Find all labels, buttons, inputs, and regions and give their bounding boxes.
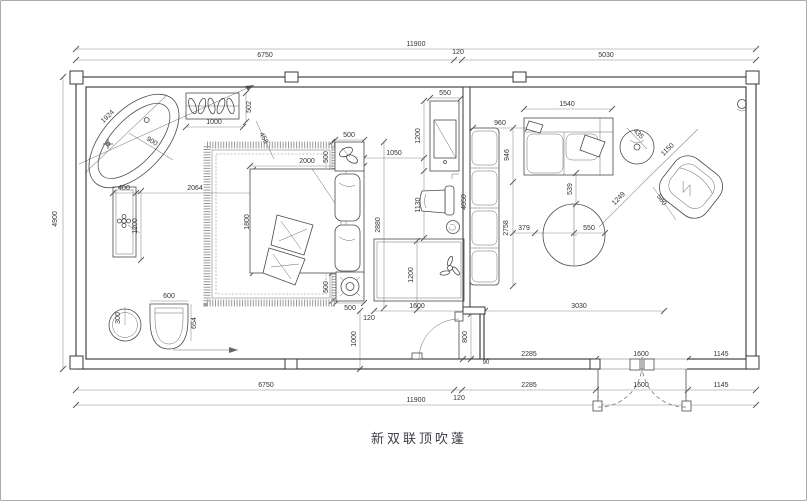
dim-label: 500 [344,305,356,312]
dim-label: 1600 [633,351,649,358]
dim-label: 1145 [713,382,728,389]
column-marker [285,72,298,82]
dim-label: 1000 [206,119,222,126]
dim-label: 1150 [660,142,676,158]
dim-label: 2285 [521,382,537,389]
dim-label: 539 [567,183,574,195]
sofa-pillow [526,121,543,133]
column-marker [590,359,600,369]
dim-label: 500 [323,281,330,293]
door-swing-arc [419,319,459,359]
dim-label: 3030 [571,303,587,310]
floor-plan-svg: 11900 6750 120 5030 4900 2285 1600 1145 … [1,1,807,501]
dim-label: 1130 [415,197,422,212]
dim-label: 6750 [257,52,273,59]
dim-label: 11900 [407,41,426,48]
bath-seat [150,304,188,349]
bedroom-door [412,312,463,359]
pillow [335,174,360,221]
dim-label: 1200 [408,267,415,283]
dim-label: 4900 [52,211,59,227]
desk-chair [420,186,454,215]
dim-label: 550 [583,225,595,232]
dim-label: 1800 [244,214,251,230]
walls [70,71,759,371]
furniture [72,78,747,411]
flower-symbol [122,219,126,223]
dim-label: 1050 [386,150,402,157]
bed [250,169,364,285]
dim-label: 120 [452,49,464,56]
dim-label: 960 [494,120,506,127]
dim-label: 435 [632,127,645,140]
coffee-table [543,204,605,266]
dim-label: 946 [504,149,511,161]
dim-label: 120 [363,315,375,322]
dim-label: 120 [453,395,465,402]
dim-label: 2285 [521,351,537,358]
armchair [653,149,729,224]
dim-label: 90 [483,360,490,366]
dim-label: 1200 [415,128,422,144]
dim-label: 6750 [258,382,274,389]
dim-label: 654 [191,317,198,329]
column-marker [746,356,759,369]
stool [447,221,460,234]
floorplan-canvas: 11900 6750 120 5030 4900 2285 1600 1145 … [0,0,807,501]
tv-cabinet [430,101,459,179]
dim-label: 1000 [351,331,358,347]
dim-label: 1145 [713,351,728,358]
dim-label: 300 [115,312,122,324]
dim-label: 800 [462,331,469,343]
dim-label: 1600 [633,382,649,389]
column-marker [70,356,83,369]
dim-label: 2064 [187,185,203,192]
dim-label: 2880 [375,217,382,233]
dimension-lines [60,46,759,408]
dim-label: 4050 [461,194,468,210]
dim-label: 400 [118,185,130,192]
bathtub [72,78,195,204]
dim-label: 900 [145,136,159,148]
dim-label: 550 [439,90,451,97]
dim-label: 1200 [132,218,139,234]
grid-rug [374,239,464,301]
pillow [335,225,360,271]
nightstand-bottom [336,272,364,301]
dim-label: 600 [163,293,175,300]
l-sofa [470,128,499,285]
dimension-labels: 11900 6750 120 5030 4900 2285 1600 1145 … [52,41,729,404]
dim-label: 5030 [598,52,614,59]
dim-label: 1600 [409,303,425,310]
dim-label: 2000 [299,158,315,165]
nightstand-top [335,142,364,171]
dim-label: 1540 [559,101,575,108]
sofa-pillow [580,135,605,157]
column-marker [285,359,297,369]
dim-label: 2758 [503,220,510,236]
dim-label: 1249 [611,191,627,207]
dim-label: 502 [246,101,253,113]
column-marker [70,71,83,84]
dim-label: 500 [323,151,330,163]
column-marker [513,72,526,82]
dim-label: 500 [343,132,355,139]
plant-box [186,93,239,119]
dim-label: 11900 [407,397,426,404]
column-marker [746,71,759,84]
ceiling-fan-symbol [440,256,461,276]
sofa [524,118,613,175]
dim-label: 379 [518,225,530,232]
drawing-title: 新双联顶吹蓬 [371,431,467,446]
